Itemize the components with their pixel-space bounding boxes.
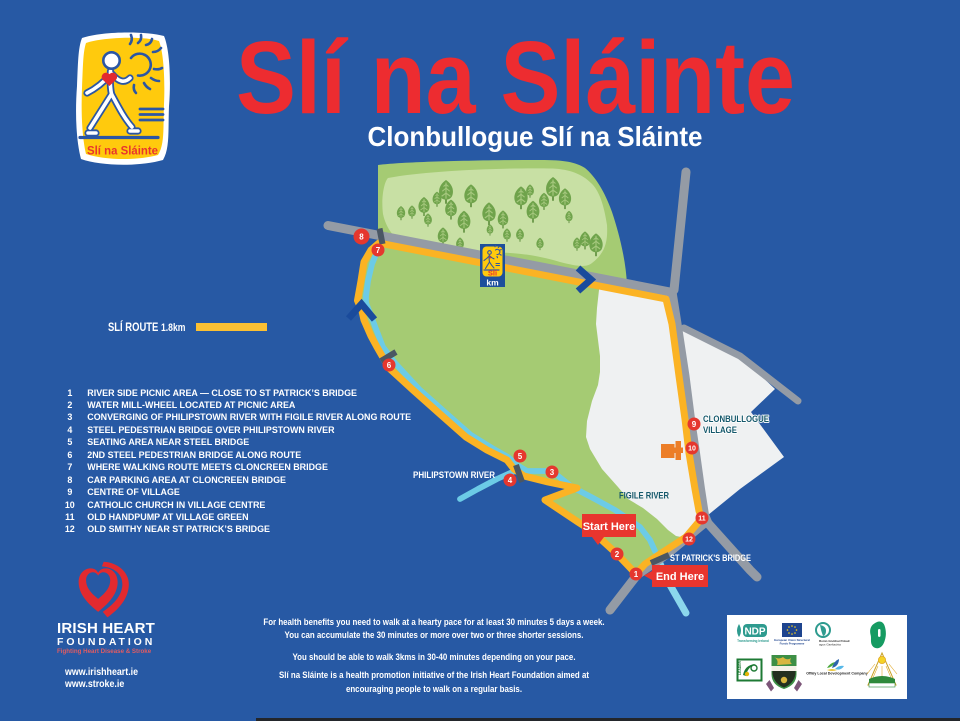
svg-text:6: 6: [387, 361, 392, 370]
svg-text:km: km: [486, 278, 499, 288]
svg-text:Slí na Sláinte: Slí na Sláinte: [87, 144, 158, 158]
svg-text:Transforming Ireland: Transforming Ireland: [737, 639, 769, 643]
svg-text:9: 9: [692, 420, 697, 429]
svg-text:10: 10: [688, 446, 696, 453]
svg-text:ST PATRICK'S BRIDGE: ST PATRICK'S BRIDGE: [670, 552, 751, 563]
svg-text:3: 3: [550, 468, 555, 477]
svg-text:12: 12: [685, 537, 693, 544]
svg-text:FIGILE RIVER: FIGILE RIVER: [619, 491, 669, 501]
svg-text:Funds Programme: Funds Programme: [780, 642, 805, 646]
svg-text:2: 2: [615, 550, 620, 559]
svg-text:CLONBULLOGUE: CLONBULLOGUE: [703, 414, 769, 425]
svg-text:agus Gaeltachta: agus Gaeltachta: [819, 643, 841, 647]
svg-text:7: 7: [376, 246, 381, 255]
svg-text:5: 5: [518, 452, 523, 461]
svg-text:LEADER: LEADER: [738, 661, 742, 675]
svg-text:4: 4: [508, 476, 513, 485]
svg-text:NDP: NDP: [744, 627, 765, 638]
svg-text:VILLAGE: VILLAGE: [703, 425, 737, 436]
svg-text:8: 8: [359, 232, 364, 241]
svg-text:11: 11: [698, 516, 706, 523]
svg-text:End Here: End Here: [656, 571, 704, 583]
svg-text:Offaly Local Development Compa: Offaly Local Development Company: [806, 672, 868, 676]
svg-text:Start Here: Start Here: [583, 521, 636, 533]
svg-text:Slí: Slí: [488, 269, 498, 278]
svg-text:PHILIPSTOWN RIVER: PHILIPSTOWN RIVER: [413, 470, 495, 480]
svg-text:1: 1: [634, 570, 639, 579]
